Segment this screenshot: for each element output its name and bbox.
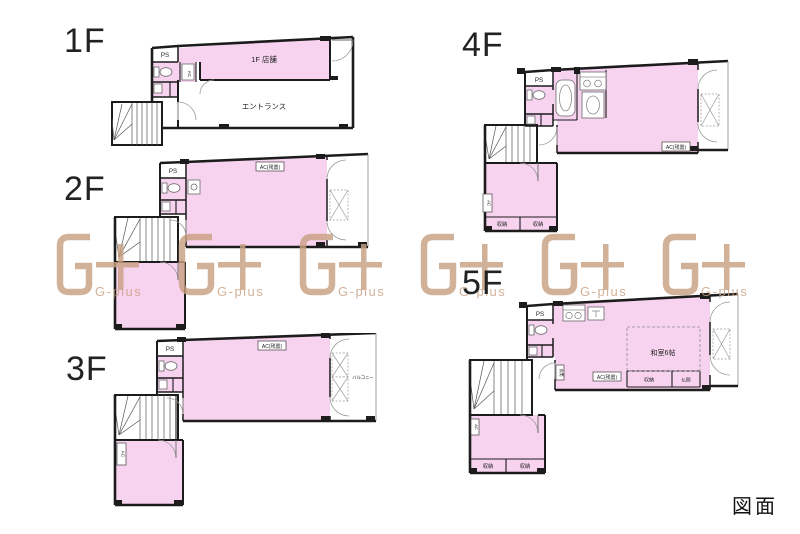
toilet-icon: [160, 68, 172, 77]
g-plus-logo: G-plus: [60, 237, 142, 299]
stove-icon: [563, 305, 585, 321]
g-plus-text: G-plus: [580, 284, 627, 299]
door-arc: [332, 40, 353, 61]
stove-icon: [580, 72, 606, 90]
ps-label: PS: [535, 77, 543, 84]
ac-note-label: AC(残置): [260, 164, 281, 171]
caption-zumen: 図面: [732, 490, 778, 519]
g-plus-text: G-plus: [701, 284, 748, 299]
floorplan-page: 1F 2F 3F 4F 5F: [0, 0, 800, 534]
storage-label: 収納: [644, 377, 654, 384]
door-arc: [698, 70, 717, 89]
floor-label-1f: 1F: [64, 22, 106, 61]
stairs-4f: [485, 125, 537, 163]
floor-label-4f: 4F: [462, 26, 504, 65]
g-plus-text: G-plus: [95, 284, 142, 299]
entrance-label: エントランス: [242, 102, 286, 111]
storage-label: 収納: [483, 462, 494, 470]
door-arc: [178, 102, 196, 120]
stairs-5f: [470, 360, 532, 415]
ps-label: PS: [169, 168, 177, 175]
g-plus-logo: G-plus: [545, 237, 627, 299]
genkan-label: 玄関: [559, 369, 565, 377]
shop-label: 1F 店舗: [251, 55, 277, 64]
ac-label: AC: [474, 424, 479, 430]
toilet-icon: [535, 326, 547, 335]
floor-label-2f: 2F: [64, 170, 106, 209]
ac-note-label: AC(残置): [262, 343, 283, 350]
toilet-icon: [168, 184, 180, 193]
toilet-icon: [165, 362, 177, 371]
ps-label: PS: [161, 52, 169, 59]
rooms-3f: [115, 334, 330, 505]
floor-plan-3f: PS AC(残置) バルコニー AC: [110, 333, 395, 521]
g-plus-text: G-plus: [338, 284, 385, 299]
ac-label: AC: [487, 200, 492, 206]
toilet-icon: [533, 91, 545, 100]
ac-label: AC: [121, 451, 126, 458]
g-plus-text: G-plus: [217, 284, 264, 299]
g-plus-logo: G-plus: [666, 237, 748, 299]
g-plus-logo: G-plus: [303, 237, 385, 299]
ac-label: AC: [187, 71, 192, 78]
stairs-3f: [115, 395, 178, 440]
stairs-1f: [112, 102, 162, 145]
door-arc: [539, 127, 557, 145]
rooms-5f: [470, 295, 710, 473]
balcony-label: バルコニー: [352, 375, 373, 380]
storage-label: 収納: [533, 220, 544, 228]
door-arc: [539, 363, 555, 379]
washitsu-label: 和室6帖: [651, 348, 676, 357]
storage-label: 収納: [520, 462, 531, 470]
door-arc: [710, 302, 730, 322]
floor-plan-5f: PS 和室6帖 収納 仏間 AC(残置) 玄関 AC 収納 収納: [460, 291, 745, 483]
door-arc: [327, 160, 346, 179]
ac-note-label: AC(残置): [666, 144, 687, 151]
ac-note-label: AC(残置): [597, 374, 618, 381]
storage-label: 収納: [497, 220, 508, 228]
ps-label: PS: [166, 346, 174, 353]
watermark-row: G-plusG-plusG-plusG-plusG-plusG-plus: [0, 230, 800, 305]
g-plus-logo: G-plus: [182, 237, 264, 299]
door-arc: [167, 398, 183, 414]
floor-label-5f: 5F: [462, 264, 504, 303]
door-arc: [200, 80, 214, 94]
floor-label-3f: 3F: [66, 350, 108, 389]
floor-plan-1f: PS AC 1F 店舗 エントランス: [106, 24, 358, 148]
floor-plan-4f: PS AC(残置) AC 収納 収納: [460, 56, 745, 236]
ps-label: PS: [536, 311, 544, 318]
